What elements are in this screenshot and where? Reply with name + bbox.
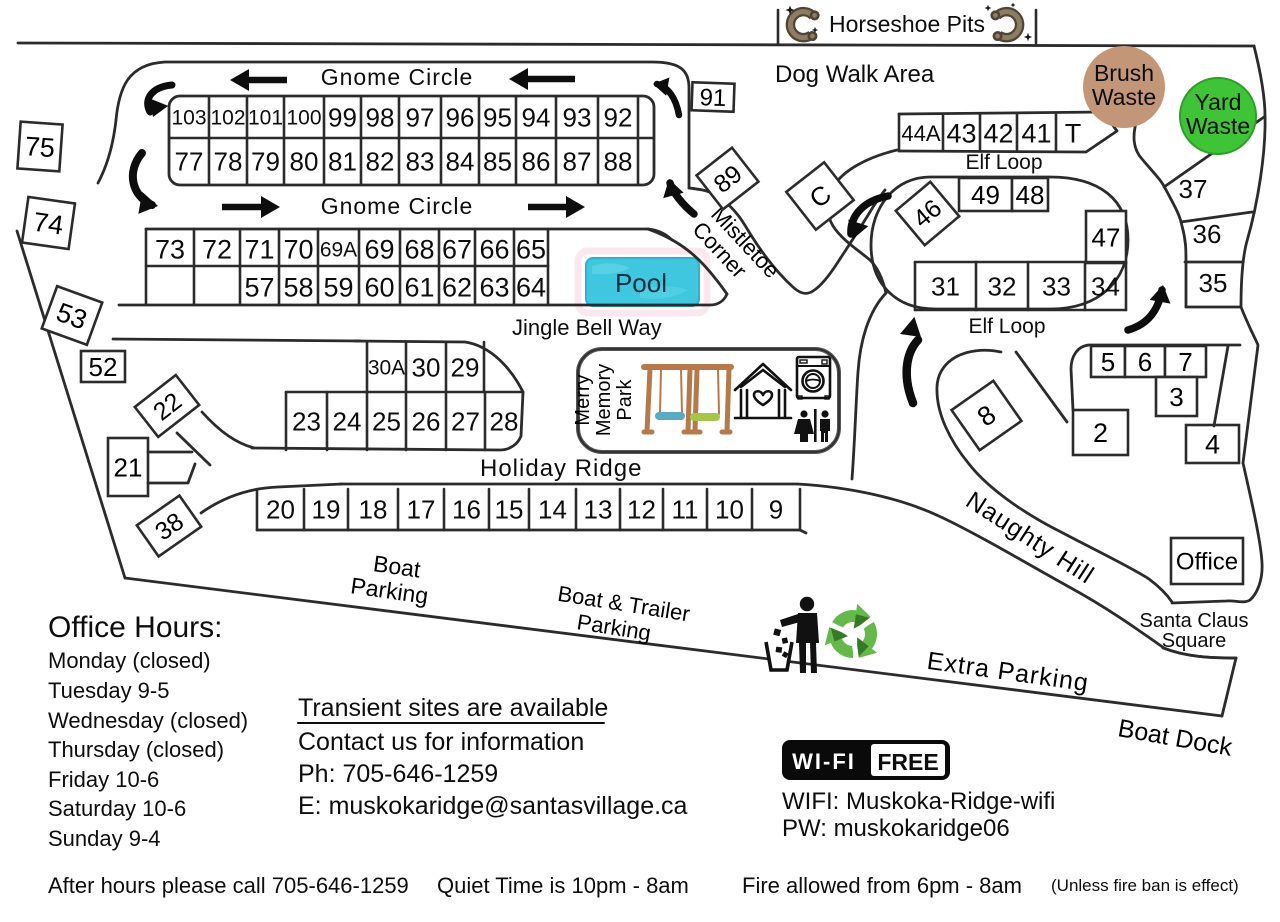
svg-text:44A: 44A (901, 121, 940, 146)
svg-text:82: 82 (366, 146, 395, 176)
svg-text:Monday (closed): Monday (closed) (48, 648, 211, 673)
svg-text:Friday 10-6: Friday 10-6 (48, 767, 159, 792)
svg-text:77: 77 (175, 146, 204, 176)
svg-text:Yard: Yard (1195, 89, 1242, 115)
svg-text:Waste: Waste (1186, 113, 1250, 139)
svg-text:Ph: 705-646-1259: Ph: 705-646-1259 (298, 760, 498, 788)
svg-text:27: 27 (451, 406, 480, 436)
svg-text:Fire allowed from 6pm - 8am: Fire allowed from 6pm - 8am (742, 873, 1022, 898)
svg-text:2: 2 (1093, 418, 1108, 448)
svg-text:(Unless fire ban is effect): (Unless fire ban is effect) (1051, 876, 1239, 895)
svg-text:WIFI: Muskoka-Ridge-wifi: WIFI: Muskoka-Ridge-wifi (782, 788, 1055, 815)
svg-text:19: 19 (312, 494, 341, 524)
svg-text:103: 103 (171, 107, 206, 130)
svg-text:PW: muskokaridge06: PW: muskokaridge06 (782, 815, 1010, 842)
svg-text:87: 87 (563, 146, 592, 176)
svg-text:68: 68 (404, 235, 434, 265)
svg-text:43: 43 (946, 119, 976, 149)
svg-text:25: 25 (372, 406, 401, 436)
svg-text:32: 32 (988, 271, 1017, 301)
svg-text:47: 47 (1092, 222, 1121, 252)
svg-text:Merry: Merry (572, 374, 594, 425)
svg-text:98: 98 (366, 102, 395, 132)
svg-text:30: 30 (412, 352, 441, 382)
svg-text:69: 69 (364, 235, 394, 265)
svg-text:Sunday 9-4: Sunday 9-4 (48, 826, 161, 851)
svg-text:WI-FI: WI-FI (792, 749, 856, 774)
svg-text:83: 83 (406, 146, 435, 176)
svg-text:92: 92 (604, 102, 633, 132)
svg-text:24: 24 (333, 406, 362, 436)
svg-text:78: 78 (214, 146, 243, 176)
svg-text:49: 49 (971, 180, 1000, 210)
svg-text:65: 65 (516, 235, 546, 265)
svg-text:102: 102 (210, 107, 245, 130)
svg-text:6: 6 (1138, 347, 1152, 377)
svg-text:41: 41 (1021, 119, 1051, 149)
svg-text:70: 70 (283, 235, 313, 265)
svg-text:94: 94 (522, 102, 551, 132)
svg-text:Tuesday 9-5: Tuesday 9-5 (48, 678, 169, 703)
svg-text:66: 66 (479, 235, 509, 265)
svg-text:80: 80 (290, 146, 319, 176)
svg-text:72: 72 (202, 235, 232, 265)
svg-text:63: 63 (479, 273, 509, 303)
svg-text:62: 62 (442, 273, 472, 303)
svg-text:Square: Square (1162, 630, 1227, 652)
svg-text:61: 61 (404, 273, 434, 303)
svg-text:Wednesday (closed): Wednesday (closed) (48, 708, 248, 733)
svg-text:86: 86 (522, 146, 551, 176)
svg-text:52: 52 (89, 352, 118, 382)
svg-text:Park: Park (614, 378, 636, 420)
svg-text:Brush: Brush (1094, 60, 1154, 86)
svg-text:37: 37 (1179, 174, 1208, 204)
svg-text:16: 16 (452, 494, 481, 524)
svg-text:95: 95 (483, 102, 512, 132)
svg-text:81: 81 (328, 146, 357, 176)
svg-text:60: 60 (364, 273, 394, 303)
svg-text:57: 57 (244, 273, 274, 303)
svg-text:75: 75 (24, 131, 56, 163)
svg-text:Memory: Memory (593, 364, 615, 436)
svg-text:96: 96 (446, 102, 475, 132)
svg-text:FREE: FREE (877, 749, 938, 775)
svg-text:36: 36 (1193, 219, 1222, 249)
svg-text:13: 13 (584, 494, 613, 524)
svg-text:21: 21 (114, 452, 143, 482)
svg-text:Thursday (closed): Thursday (closed) (48, 737, 224, 762)
svg-text:73: 73 (155, 235, 185, 265)
svg-text:Office: Office (1176, 549, 1238, 576)
svg-text:Horseshoe Pits: Horseshoe Pits (829, 11, 985, 37)
svg-text:Elf Loop: Elf Loop (968, 315, 1045, 338)
svg-text:14: 14 (538, 494, 567, 524)
svg-text:35: 35 (1199, 268, 1228, 298)
svg-text:9: 9 (769, 494, 783, 524)
svg-text:79: 79 (251, 146, 280, 176)
svg-text:After hours please call 705-64: After hours please call 705-646-1259 (48, 873, 409, 898)
svg-text:11: 11 (672, 494, 699, 524)
svg-text:91: 91 (699, 84, 727, 112)
svg-text:Saturday 10-6: Saturday 10-6 (48, 796, 186, 821)
svg-text:31: 31 (931, 271, 960, 301)
svg-text:30A: 30A (368, 357, 405, 380)
svg-text:15: 15 (495, 494, 524, 524)
svg-text:18: 18 (359, 494, 388, 524)
svg-text:Gnome Circle: Gnome Circle (321, 193, 474, 219)
svg-text:7: 7 (1178, 347, 1192, 377)
svg-text:5: 5 (1101, 347, 1115, 377)
svg-text:71: 71 (244, 235, 274, 265)
svg-text:58: 58 (283, 273, 313, 303)
svg-text:10: 10 (715, 494, 744, 524)
svg-text:T: T (1065, 119, 1082, 149)
svg-text:Gnome Circle: Gnome Circle (321, 64, 474, 90)
svg-text:4: 4 (1205, 430, 1220, 460)
svg-text:Pool: Pool (615, 268, 667, 298)
svg-text:Waste: Waste (1092, 84, 1156, 110)
svg-text:85: 85 (483, 146, 512, 176)
svg-text:97: 97 (406, 102, 435, 132)
svg-text:101: 101 (248, 107, 283, 130)
svg-text:33: 33 (1042, 271, 1071, 301)
svg-text:Contact us for information: Contact us for information (298, 728, 584, 756)
svg-text:48: 48 (1016, 180, 1045, 210)
svg-text:42: 42 (983, 119, 1013, 149)
svg-text:99: 99 (328, 102, 357, 132)
svg-text:Dog Walk Area: Dog Walk Area (775, 61, 935, 88)
svg-text:E: muskokaridge@santasvillage.: E: muskokaridge@santasvillage.ca (298, 792, 688, 820)
svg-text:74: 74 (31, 207, 65, 241)
svg-text:28: 28 (490, 406, 519, 436)
svg-text:Santa Claus: Santa Claus (1140, 610, 1249, 632)
svg-text:84: 84 (446, 146, 475, 176)
svg-text:67: 67 (442, 235, 472, 265)
svg-text:59: 59 (323, 273, 353, 303)
svg-text:Transient sites are available: Transient sites are available (298, 694, 608, 722)
svg-text:17: 17 (407, 494, 436, 524)
svg-text:Office Hours:: Office Hours: (48, 611, 223, 644)
svg-text:23: 23 (292, 406, 321, 436)
svg-text:88: 88 (604, 146, 633, 176)
svg-text:93: 93 (563, 102, 592, 132)
svg-text:34: 34 (1091, 271, 1120, 301)
svg-text:Holiday Ridge: Holiday Ridge (480, 455, 642, 482)
svg-text:20: 20 (266, 494, 295, 524)
svg-text:3: 3 (1169, 382, 1183, 412)
svg-text:26: 26 (412, 406, 441, 436)
svg-text:12: 12 (627, 494, 656, 524)
svg-text:69A: 69A (320, 239, 357, 262)
svg-text:29: 29 (451, 352, 480, 382)
svg-text:64: 64 (516, 273, 546, 303)
svg-text:100: 100 (286, 107, 321, 130)
svg-text:Jingle Bell Way: Jingle Bell Way (512, 315, 662, 340)
svg-text:Elf Loop: Elf Loop (965, 151, 1042, 174)
svg-text:Quiet Time is 10pm - 8am: Quiet Time is 10pm - 8am (437, 873, 689, 898)
